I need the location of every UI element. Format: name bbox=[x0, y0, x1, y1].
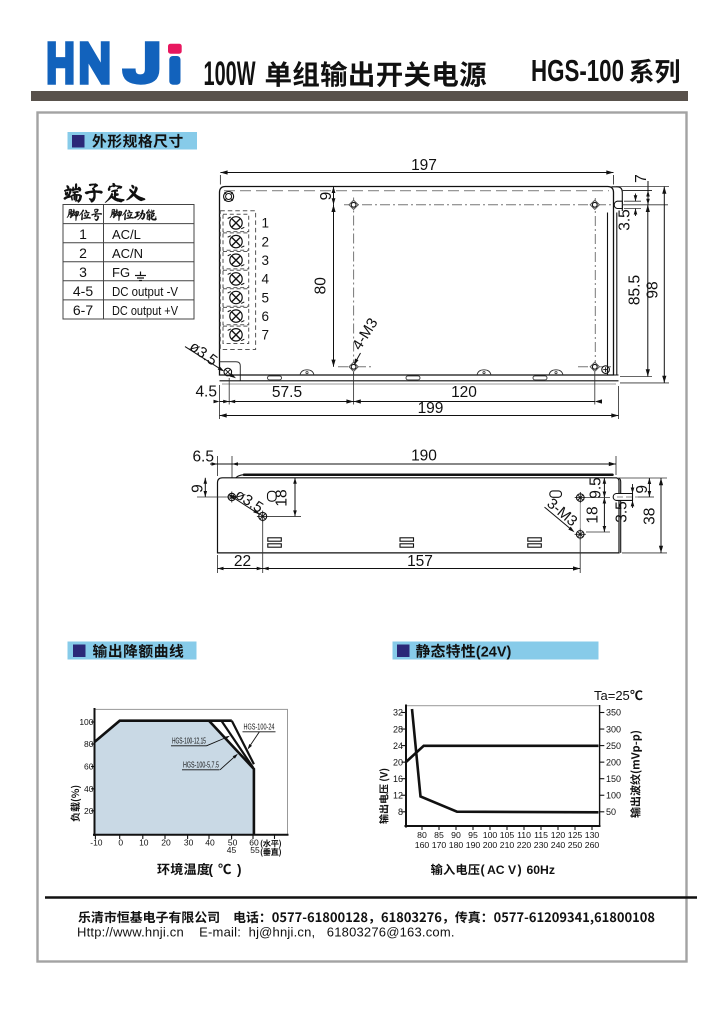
svg-text:180: 180 bbox=[449, 840, 464, 850]
svg-text:95: 95 bbox=[468, 830, 478, 840]
svg-text:50: 50 bbox=[606, 807, 616, 817]
svg-text:150: 150 bbox=[606, 774, 621, 784]
svg-text:250: 250 bbox=[606, 741, 621, 751]
svg-text:2: 2 bbox=[262, 234, 270, 249]
svg-text:HGS-100-24: HGS-100-24 bbox=[244, 723, 275, 732]
svg-text:60Hz: 60Hz bbox=[527, 863, 555, 877]
svg-text:7: 7 bbox=[262, 328, 270, 343]
svg-text:30: 30 bbox=[184, 838, 194, 848]
svg-text:7: 7 bbox=[633, 174, 650, 183]
svg-text:210: 210 bbox=[500, 840, 515, 850]
svg-text:350: 350 bbox=[606, 708, 621, 718]
svg-text:6: 6 bbox=[262, 309, 270, 324]
svg-text:HGS-100-5,7.5: HGS-100-5,7.5 bbox=[183, 761, 219, 770]
svg-text:1: 1 bbox=[262, 216, 270, 231]
svg-text:110: 110 bbox=[517, 830, 531, 840]
svg-text:250: 250 bbox=[568, 840, 583, 850]
svg-text:6-7: 6-7 bbox=[73, 302, 93, 318]
svg-text:8: 8 bbox=[398, 807, 403, 817]
svg-text:80: 80 bbox=[417, 830, 427, 840]
svg-text:10: 10 bbox=[139, 838, 149, 848]
svg-text:200: 200 bbox=[483, 840, 498, 850]
svg-text:1: 1 bbox=[79, 226, 87, 242]
svg-text:AC/N: AC/N bbox=[112, 246, 143, 261]
svg-text:2: 2 bbox=[79, 245, 87, 261]
svg-text:190: 190 bbox=[466, 840, 481, 850]
svg-text:120: 120 bbox=[551, 830, 566, 840]
svg-text:57.5: 57.5 bbox=[272, 384, 302, 401]
svg-text:AC/L: AC/L bbox=[112, 227, 141, 242]
svg-text:): ) bbox=[237, 862, 242, 877]
svg-text:98: 98 bbox=[645, 281, 662, 298]
svg-text:157: 157 bbox=[407, 553, 433, 570]
svg-text:9: 9 bbox=[634, 485, 651, 494]
svg-text:-10: -10 bbox=[90, 838, 103, 848]
svg-text:20: 20 bbox=[84, 806, 94, 816]
svg-text:FG: FG bbox=[112, 265, 130, 280]
svg-text:6.5: 6.5 bbox=[192, 449, 214, 466]
svg-text:(24V): (24V) bbox=[476, 645, 512, 661]
svg-text:100: 100 bbox=[483, 830, 498, 840]
svg-text:200: 200 bbox=[606, 757, 621, 767]
svg-text:240: 240 bbox=[551, 840, 566, 850]
svg-text:80: 80 bbox=[313, 277, 330, 295]
svg-text:80: 80 bbox=[84, 739, 94, 749]
svg-text:12: 12 bbox=[393, 790, 403, 800]
svg-text:4: 4 bbox=[262, 272, 270, 287]
svg-text:115: 115 bbox=[534, 830, 548, 840]
svg-text:20: 20 bbox=[161, 838, 171, 848]
svg-text:130: 130 bbox=[585, 830, 600, 840]
svg-text:199: 199 bbox=[418, 400, 444, 417]
svg-text:3.5: 3.5 bbox=[614, 501, 631, 523]
svg-text:220: 220 bbox=[517, 840, 532, 850]
svg-text:Http://www.hnji.cn E-mail:: Http://www.hnji.cn E-mail: hj@hnji.cn, 6… bbox=[77, 925, 455, 940]
svg-text:300: 300 bbox=[606, 724, 621, 734]
svg-text:170: 170 bbox=[432, 840, 447, 850]
svg-text:24: 24 bbox=[393, 741, 403, 751]
svg-text:40: 40 bbox=[205, 838, 215, 848]
svg-text:40: 40 bbox=[84, 784, 94, 794]
svg-text:Ta=25: Ta=25 bbox=[594, 688, 630, 703]
svg-text:60: 60 bbox=[84, 762, 94, 772]
svg-text:85.5: 85.5 bbox=[627, 275, 644, 305]
svg-text:190: 190 bbox=[411, 448, 437, 465]
svg-text:105: 105 bbox=[500, 830, 515, 840]
svg-text:5: 5 bbox=[262, 290, 270, 305]
svg-text:DC output +V: DC output +V bbox=[112, 303, 178, 318]
svg-text:DC output -V: DC output -V bbox=[112, 284, 178, 299]
svg-text:9.5: 9.5 bbox=[588, 477, 605, 499]
svg-text:100W: 100W bbox=[204, 55, 257, 93]
svg-text:28: 28 bbox=[393, 724, 403, 734]
svg-text:18: 18 bbox=[274, 489, 291, 506]
svg-text:18: 18 bbox=[585, 506, 602, 523]
svg-text:230: 230 bbox=[534, 840, 549, 850]
svg-text:AC V: AC V bbox=[487, 863, 517, 877]
svg-text:16: 16 bbox=[393, 774, 403, 784]
svg-text:0: 0 bbox=[118, 838, 123, 848]
svg-text:9: 9 bbox=[318, 192, 335, 201]
svg-text:HGS-100: HGS-100 bbox=[531, 53, 624, 88]
svg-text:9: 9 bbox=[190, 484, 207, 493]
svg-text:4.5: 4.5 bbox=[195, 384, 217, 401]
svg-text:100: 100 bbox=[79, 717, 93, 727]
svg-text:260: 260 bbox=[585, 840, 600, 850]
svg-text:): ) bbox=[518, 863, 522, 877]
svg-text:(: ( bbox=[209, 862, 214, 877]
svg-text:HGS-100-12,15: HGS-100-12,15 bbox=[172, 737, 206, 746]
svg-text:160: 160 bbox=[415, 840, 430, 850]
svg-text:4-5: 4-5 bbox=[73, 283, 93, 299]
svg-text:100: 100 bbox=[606, 790, 621, 800]
svg-text:22: 22 bbox=[234, 553, 251, 570]
svg-text:20: 20 bbox=[393, 757, 403, 767]
svg-text:90: 90 bbox=[451, 830, 461, 840]
svg-text:197: 197 bbox=[411, 157, 437, 174]
svg-text:3: 3 bbox=[262, 253, 270, 268]
svg-text:120: 120 bbox=[451, 384, 477, 401]
svg-text:32: 32 bbox=[393, 708, 403, 718]
svg-text:85: 85 bbox=[434, 830, 444, 840]
svg-text:3.5: 3.5 bbox=[617, 209, 634, 231]
svg-text:3: 3 bbox=[79, 264, 87, 280]
svg-text:38: 38 bbox=[642, 508, 659, 525]
svg-text:45: 45 bbox=[227, 845, 237, 855]
svg-text:125: 125 bbox=[568, 830, 583, 840]
svg-text:55: 55 bbox=[250, 845, 260, 855]
